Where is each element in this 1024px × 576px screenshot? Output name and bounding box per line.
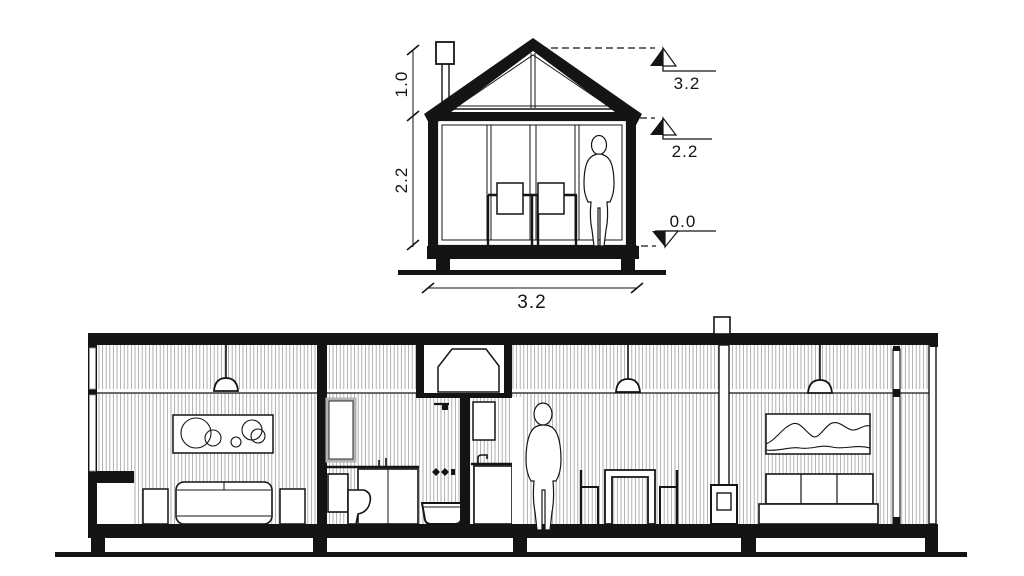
right-end-wall bbox=[929, 333, 938, 524]
towel bbox=[538, 183, 564, 214]
right-wall bbox=[627, 112, 636, 248]
wall-art-landscape bbox=[766, 414, 870, 454]
built-in-desk bbox=[96, 471, 134, 483]
gable-glazing bbox=[450, 48, 616, 109]
wall-cabinet bbox=[473, 402, 495, 440]
elevation-marker-floor: 0.0 bbox=[630, 212, 716, 247]
dim-width-label: 3.2 bbox=[517, 292, 546, 313]
left-wall bbox=[428, 112, 437, 248]
roof-slab bbox=[88, 333, 938, 345]
left-window-upper bbox=[90, 348, 96, 389]
long-section-view bbox=[55, 317, 967, 557]
bathtub bbox=[422, 503, 464, 524]
level-ridge-label: 3.2 bbox=[674, 74, 701, 93]
skylight-shape bbox=[438, 349, 499, 392]
elevation-marker-eave: 2.2 bbox=[629, 118, 712, 161]
door-opening bbox=[512, 397, 521, 524]
sections-svg: 1.0 2.2 3.2 3.2 2.2 bbox=[0, 0, 1024, 576]
footing bbox=[621, 259, 635, 271]
bed bbox=[176, 482, 272, 524]
nightstand bbox=[280, 489, 305, 524]
architectural-drawing: 1.0 2.2 3.2 3.2 2.2 bbox=[0, 0, 1024, 576]
ground-line bbox=[55, 552, 967, 557]
desk-recess bbox=[97, 483, 134, 524]
eave-beam bbox=[433, 112, 631, 121]
skylight-box bbox=[416, 345, 512, 398]
floor-slab bbox=[427, 246, 639, 259]
kitchen-appliance bbox=[474, 466, 512, 524]
towel bbox=[497, 183, 523, 214]
nightstand bbox=[143, 489, 168, 524]
footing bbox=[436, 259, 450, 271]
wall-art-circles bbox=[173, 415, 273, 453]
dim-roof-height-label: 1.0 bbox=[392, 71, 411, 98]
mirror bbox=[327, 399, 355, 461]
stove-door bbox=[717, 493, 731, 510]
roof-chimney bbox=[714, 317, 730, 334]
window-mullion bbox=[893, 346, 900, 525]
level-floor-label: 0.0 bbox=[670, 212, 697, 231]
dim-wall-height-label: 2.2 bbox=[392, 167, 411, 194]
left-window-lower bbox=[90, 395, 96, 471]
level-eave-label: 2.2 bbox=[672, 142, 699, 161]
sofa bbox=[759, 474, 878, 524]
partition-wall bbox=[460, 397, 470, 524]
footings bbox=[91, 538, 938, 553]
floor-slab bbox=[88, 524, 938, 538]
stove-flue bbox=[719, 345, 729, 487]
cross-section-view: 1.0 2.2 3.2 3.2 2.2 bbox=[392, 38, 716, 313]
